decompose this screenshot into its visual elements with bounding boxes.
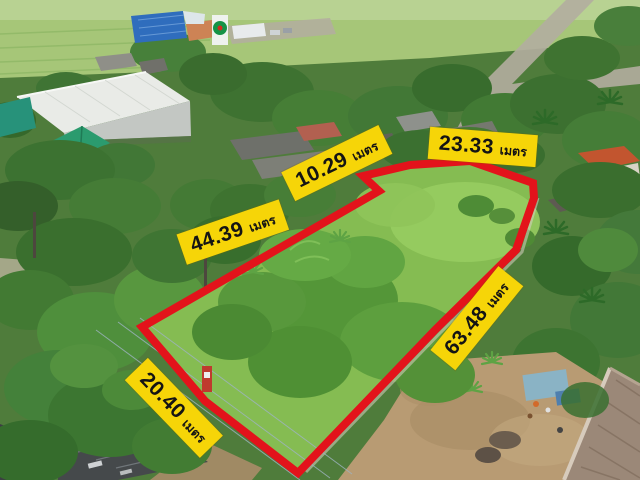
aerial-photo-scene [0, 0, 640, 480]
measurement-unit: เมตร [248, 214, 278, 235]
measurement-unit: เมตร [350, 140, 380, 163]
measurement-unit: เมตร [180, 417, 208, 445]
measurement-unit: เมตร [499, 144, 527, 159]
aerial-photo: 10.29 เมตร 23.33 เมตร 44.39 เมตร 63.48 เ… [0, 0, 640, 480]
fence-banner [202, 366, 212, 392]
measurement-unit: เมตร [485, 281, 512, 310]
measurement-value: 23.33 [438, 133, 495, 158]
